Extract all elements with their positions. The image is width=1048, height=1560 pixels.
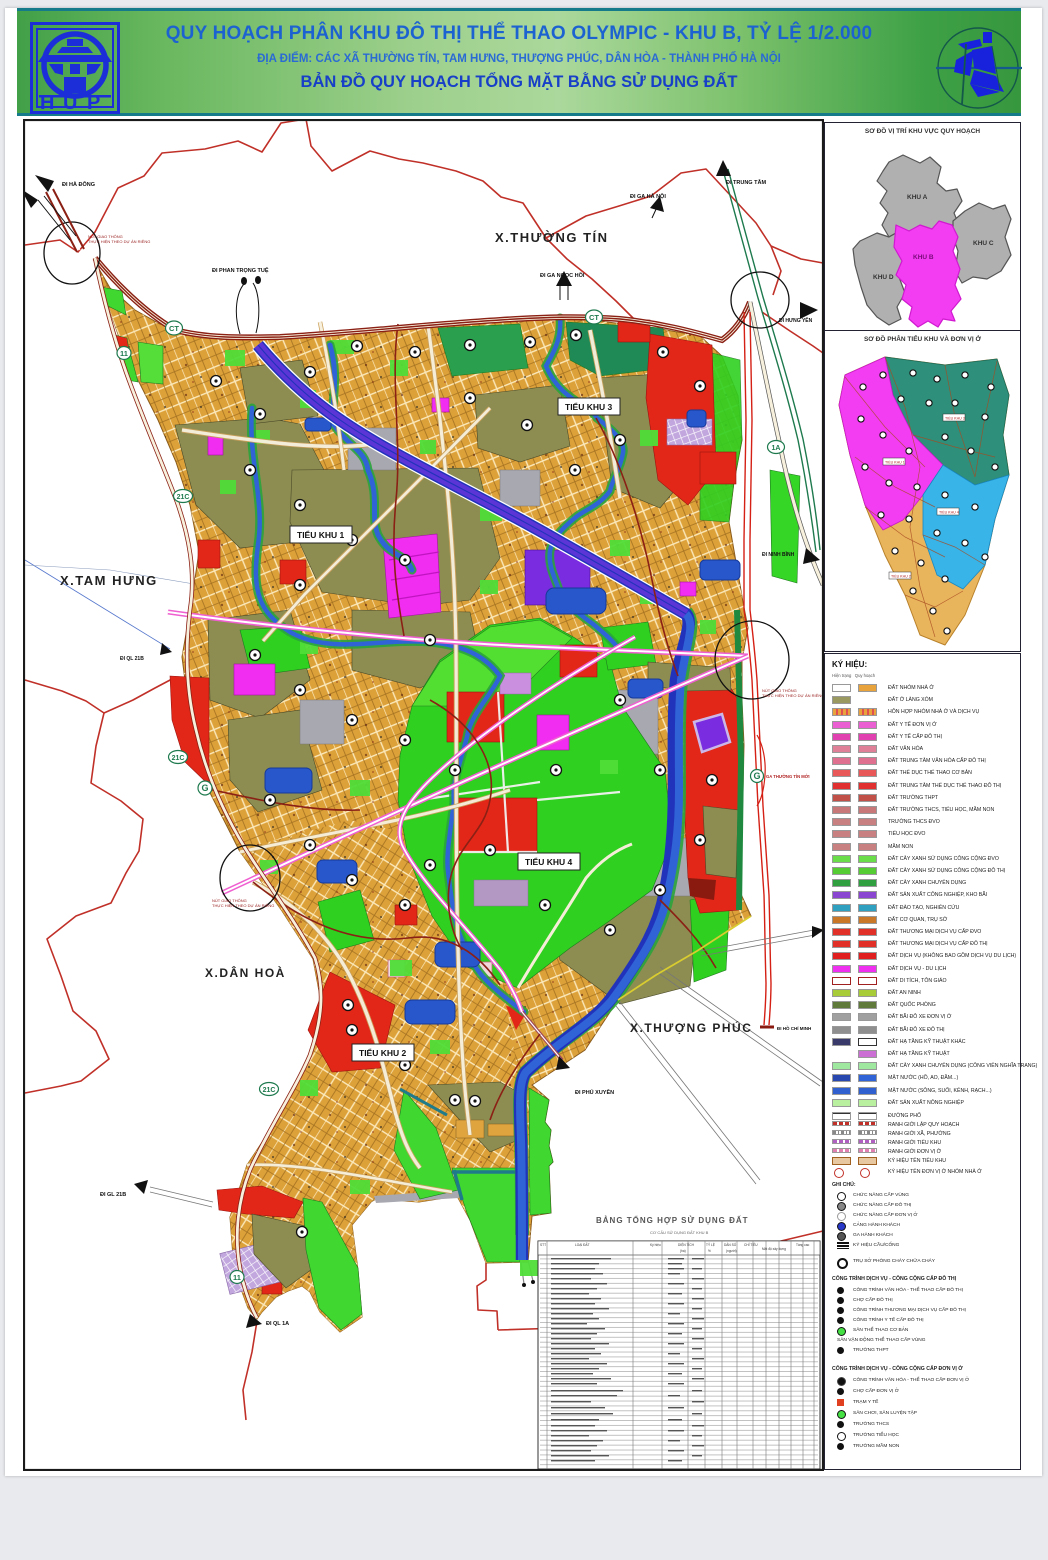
svg-text:DÂN SỐ: DÂN SỐ — [724, 1242, 737, 1247]
svg-text:ĐI PHÚ XUYÊN: ĐI PHÚ XUYÊN — [575, 1088, 614, 1096]
svg-text:KHU A: KHU A — [907, 194, 928, 201]
svg-text:21C: 21C — [263, 1087, 276, 1094]
svg-text:TIỂU KHU 4: TIỂU KHU 4 — [525, 856, 573, 867]
svg-text:THỰC HIỆN THEO DỰ ÁN RIÊNG: THỰC HIỆN THEO DỰ ÁN RIÊNG — [88, 239, 150, 244]
svg-text:%: % — [708, 1249, 711, 1253]
svg-text:ĐI TRUNG TÂM: ĐI TRUNG TÂM — [726, 179, 766, 186]
svg-text:21C: 21C — [172, 755, 185, 762]
svg-text:ĐI HÀ ĐÔNG: ĐI HÀ ĐÔNG — [62, 180, 95, 188]
svg-text:ĐI GA NGỌC HỒI: ĐI GA NGỌC HỒI — [540, 272, 585, 279]
svg-text:LOẠI ĐẤT: LOẠI ĐẤT — [575, 1243, 590, 1247]
svg-text:KHU D: KHU D — [873, 274, 894, 281]
svg-text:Mật độ xây dựng: Mật độ xây dựng — [762, 1247, 786, 1251]
svg-text:ĐI QL 21B: ĐI QL 21B — [120, 656, 144, 662]
svg-text:ĐI QL 1A: ĐI QL 1A — [266, 1321, 289, 1327]
svg-text:DIỆN TÍCH: DIỆN TÍCH — [678, 1242, 695, 1247]
svg-text:TIỂU KHU 4: TIỂU KHU 4 — [939, 510, 959, 515]
svg-text:X.THƯỢNG PHÚC: X.THƯỢNG PHÚC — [630, 1020, 752, 1035]
svg-text:X.THƯỜNG TÍN: X.THƯỜNG TÍN — [495, 230, 609, 245]
svg-text:TIỂU KHU 2: TIỂU KHU 2 — [891, 574, 911, 579]
svg-text:CHỈ TIÊU: CHỈ TIÊU — [744, 1242, 758, 1247]
svg-text:TIỂU KHU 1: TIỂU KHU 1 — [297, 529, 345, 540]
svg-text:1A: 1A — [772, 445, 781, 452]
svg-text:KHU B: KHU B — [913, 254, 934, 261]
svg-text:CƠ CẤU SỬ DỤNG ĐẤT KHU B: CƠ CẤU SỬ DỤNG ĐẤT KHU B — [650, 1230, 709, 1235]
svg-text:TỶ LỆ: TỶ LỆ — [706, 1242, 715, 1247]
svg-text:BẢNG TỔNG HỢP SỬ DỤNG ĐẤT: BẢNG TỔNG HỢP SỬ DỤNG ĐẤT — [596, 1215, 749, 1225]
svg-text:G: G — [201, 783, 208, 793]
svg-text:G: G — [753, 771, 760, 781]
svg-text:11: 11 — [233, 1273, 241, 1282]
svg-text:21C: 21C — [177, 494, 190, 501]
svg-text:TIỂU KHU 3: TIỂU KHU 3 — [565, 401, 613, 412]
svg-text:ĐI HƯNG YÊN: ĐI HƯNG YÊN — [779, 316, 813, 324]
svg-text:Ký hiệu: Ký hiệu — [650, 1243, 661, 1247]
svg-text:X.TAM HƯNG: X.TAM HƯNG — [60, 573, 158, 588]
svg-text:THỰC HIỆN THEO DỰ ÁN RIÊNG: THỰC HIỆN THEO DỰ ÁN RIÊNG — [762, 693, 824, 698]
svg-text:(ha): (ha) — [680, 1249, 686, 1253]
svg-text:ĐI GL 21B: ĐI GL 21B — [100, 1192, 126, 1198]
svg-text:ĐI NINH BÌNH: ĐI NINH BÌNH — [762, 550, 795, 558]
svg-text:THỰC HIỆN THEO DỰ ÁN RIÊNG: THỰC HIỆN THEO DỰ ÁN RIÊNG — [212, 903, 274, 908]
svg-text:CT: CT — [589, 313, 599, 322]
svg-text:X.DÂN HOÀ: X.DÂN HOÀ — [205, 965, 286, 980]
svg-text:(người): (người) — [726, 1249, 737, 1253]
svg-text:GA THƯỜNG TÍN MỚI: GA THƯỜNG TÍN MỚI — [766, 774, 810, 779]
svg-text:ĐI PHAN TRỌNG TUỆ: ĐI PHAN TRỌNG TUỆ — [212, 266, 269, 274]
svg-text:TIỂU KHU 1: TIỂU KHU 1 — [885, 460, 905, 465]
svg-text:11: 11 — [120, 349, 128, 358]
svg-text:ĐI HỒ CHÍ MINH: ĐI HỒ CHÍ MINH — [777, 1024, 811, 1031]
svg-text:KHU C: KHU C — [973, 240, 994, 247]
svg-text:ĐI GA HÀ NỘI: ĐI GA HÀ NỘI — [630, 192, 666, 200]
svg-text:STT: STT — [540, 1243, 546, 1247]
svg-text:TIỂU KHU 3: TIỂU KHU 3 — [945, 416, 965, 421]
svg-text:TIỂU KHU 2: TIỂU KHU 2 — [359, 1047, 407, 1058]
svg-text:CT: CT — [169, 324, 179, 333]
